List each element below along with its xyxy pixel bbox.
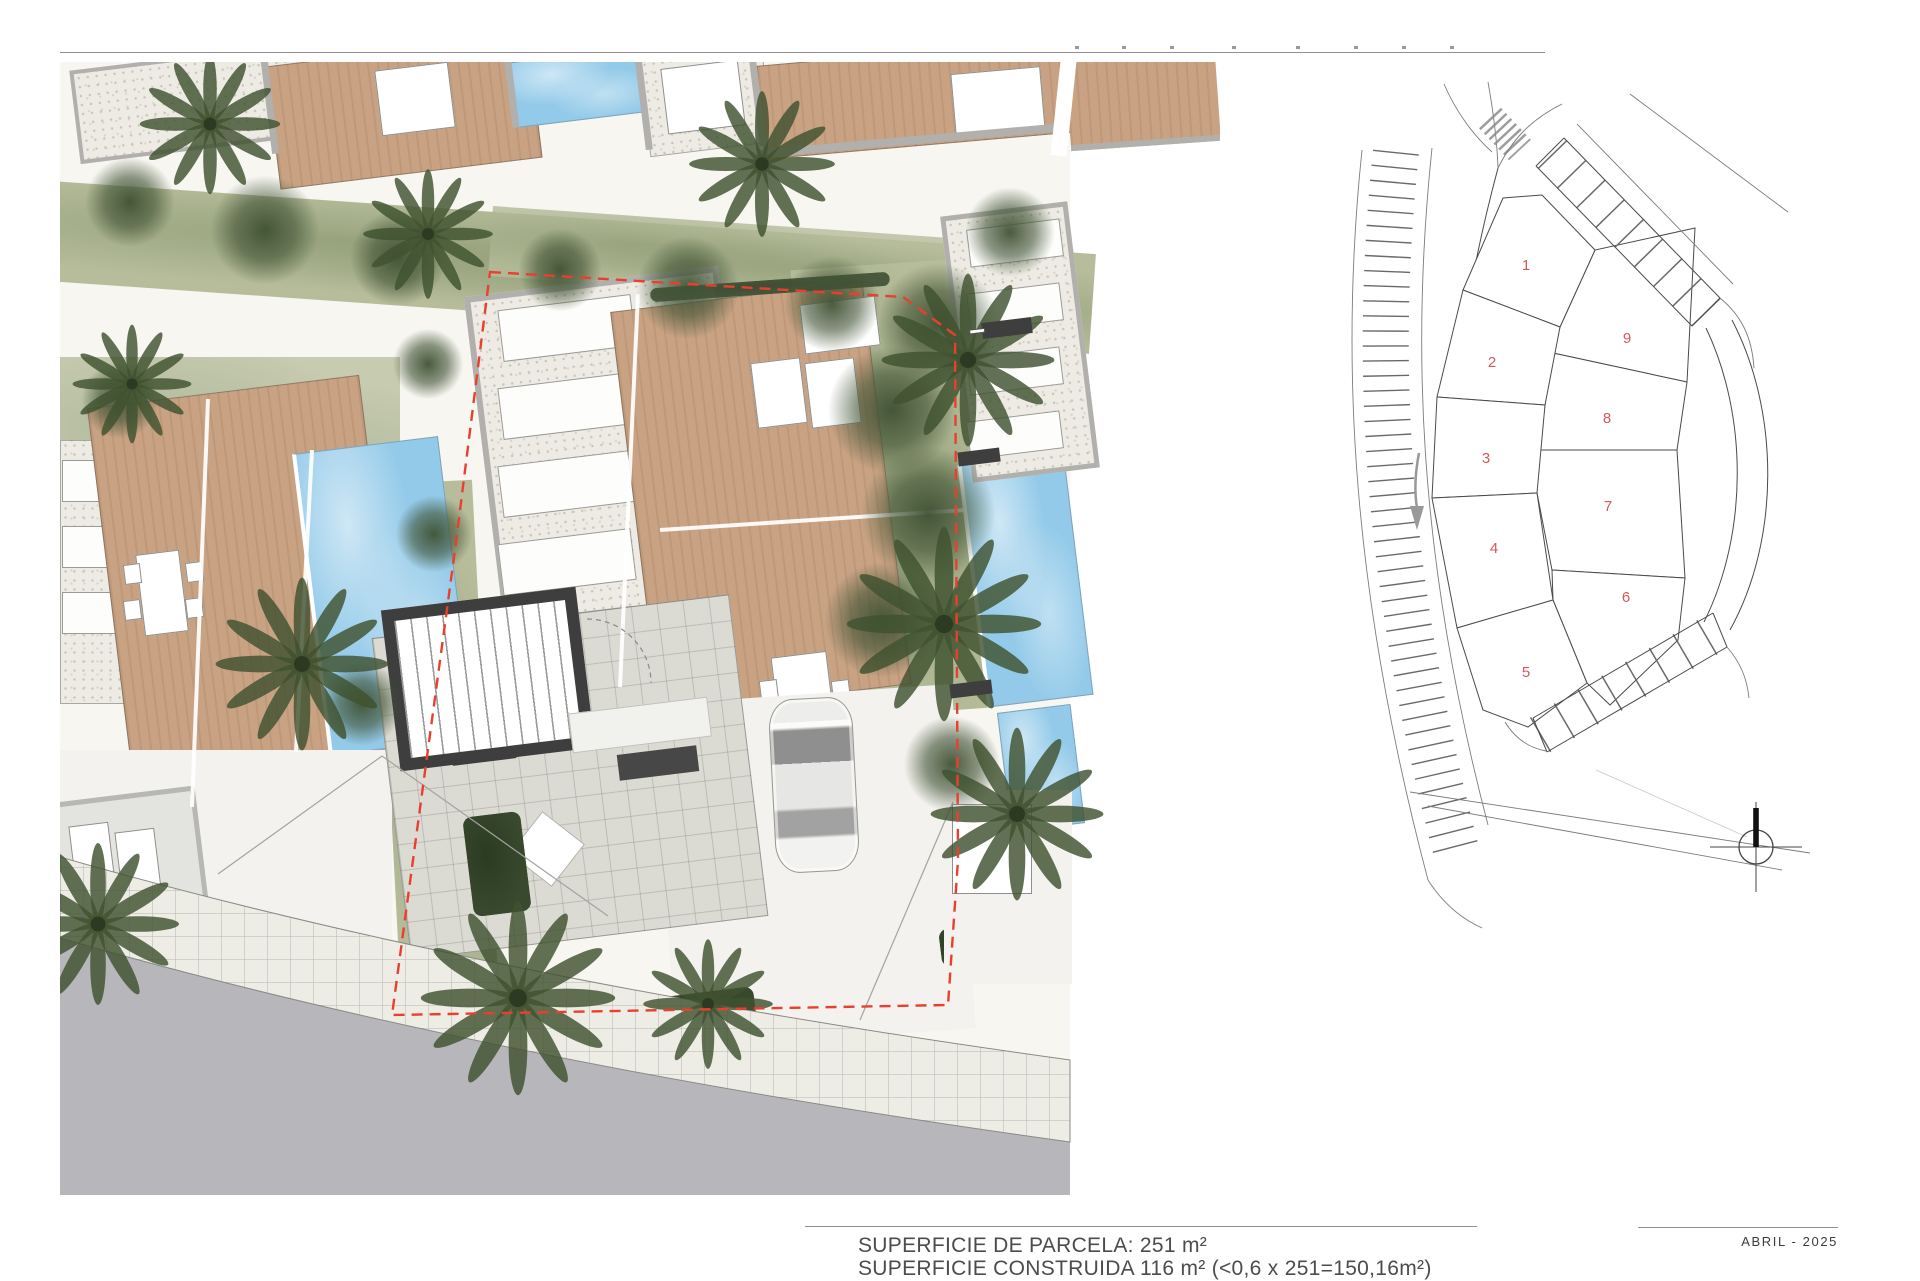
key-plan-drawing: 1 2 3 4 5 6 7 8 9 bbox=[1340, 80, 1900, 930]
parcel-number: 6 bbox=[1622, 589, 1630, 606]
road-direction-arrow-icon bbox=[1410, 506, 1424, 530]
parcel-number: 9 bbox=[1623, 330, 1631, 347]
parcel-number: 2 bbox=[1488, 354, 1496, 371]
site-plan-overlay bbox=[60, 62, 1220, 1195]
deck-joint-line bbox=[620, 294, 638, 687]
north-compass-icon bbox=[1710, 802, 1802, 892]
keyplan-parcel-3 bbox=[1432, 397, 1545, 498]
ring-road bbox=[1704, 328, 1737, 622]
parcel-number: 1 bbox=[1522, 257, 1530, 274]
built-area-text: SUPERFICIE CONSTRUIDA 116 m² (<0,6 x 251… bbox=[858, 1257, 1432, 1281]
road-direction-arrow-icon bbox=[1415, 453, 1419, 508]
clipped-text-mark bbox=[1402, 46, 1406, 49]
palm-tree bbox=[73, 325, 192, 444]
clipped-text-mark bbox=[1232, 46, 1236, 49]
plan-date: ABRIL - 2025 bbox=[1638, 1234, 1838, 1249]
driveway-joint-line bbox=[218, 756, 382, 874]
parcel-number: 8 bbox=[1603, 410, 1611, 427]
parcel-number: 4 bbox=[1490, 540, 1498, 557]
deck-joint-line bbox=[192, 399, 208, 807]
parcel-number: 5 bbox=[1522, 664, 1530, 681]
driveway-joint-line bbox=[860, 802, 953, 1020]
clipped-text-mark bbox=[1122, 46, 1126, 49]
ring-road bbox=[1730, 320, 1768, 630]
site-plan bbox=[60, 62, 1220, 1195]
driveway-joint-line bbox=[382, 756, 608, 916]
palm-tree bbox=[689, 91, 835, 237]
clipped-text-mark bbox=[1296, 46, 1300, 49]
street-edge bbox=[1444, 84, 1492, 152]
parcel-number: 7 bbox=[1604, 498, 1612, 515]
key-plan: 1 2 3 4 5 6 7 8 9 bbox=[1340, 80, 1900, 930]
plan-sheet: 1 2 3 4 5 6 7 8 9 SUPERFICIE DE PARCELA:… bbox=[0, 0, 1920, 1280]
parcel-number: 3 bbox=[1482, 450, 1490, 467]
clipped-text-mark bbox=[1170, 46, 1174, 49]
clipped-text-mark bbox=[1075, 46, 1079, 49]
parcel-area-text: SUPERFICIE DE PARCELA: 251 m² bbox=[858, 1234, 1207, 1258]
car bbox=[768, 696, 861, 874]
titleblock-rule bbox=[805, 1226, 1477, 1227]
sheet-top-rule bbox=[60, 52, 1545, 53]
clipped-text-mark bbox=[1450, 46, 1454, 49]
date-rule bbox=[1638, 1227, 1838, 1228]
clipped-text-mark bbox=[1354, 46, 1358, 49]
